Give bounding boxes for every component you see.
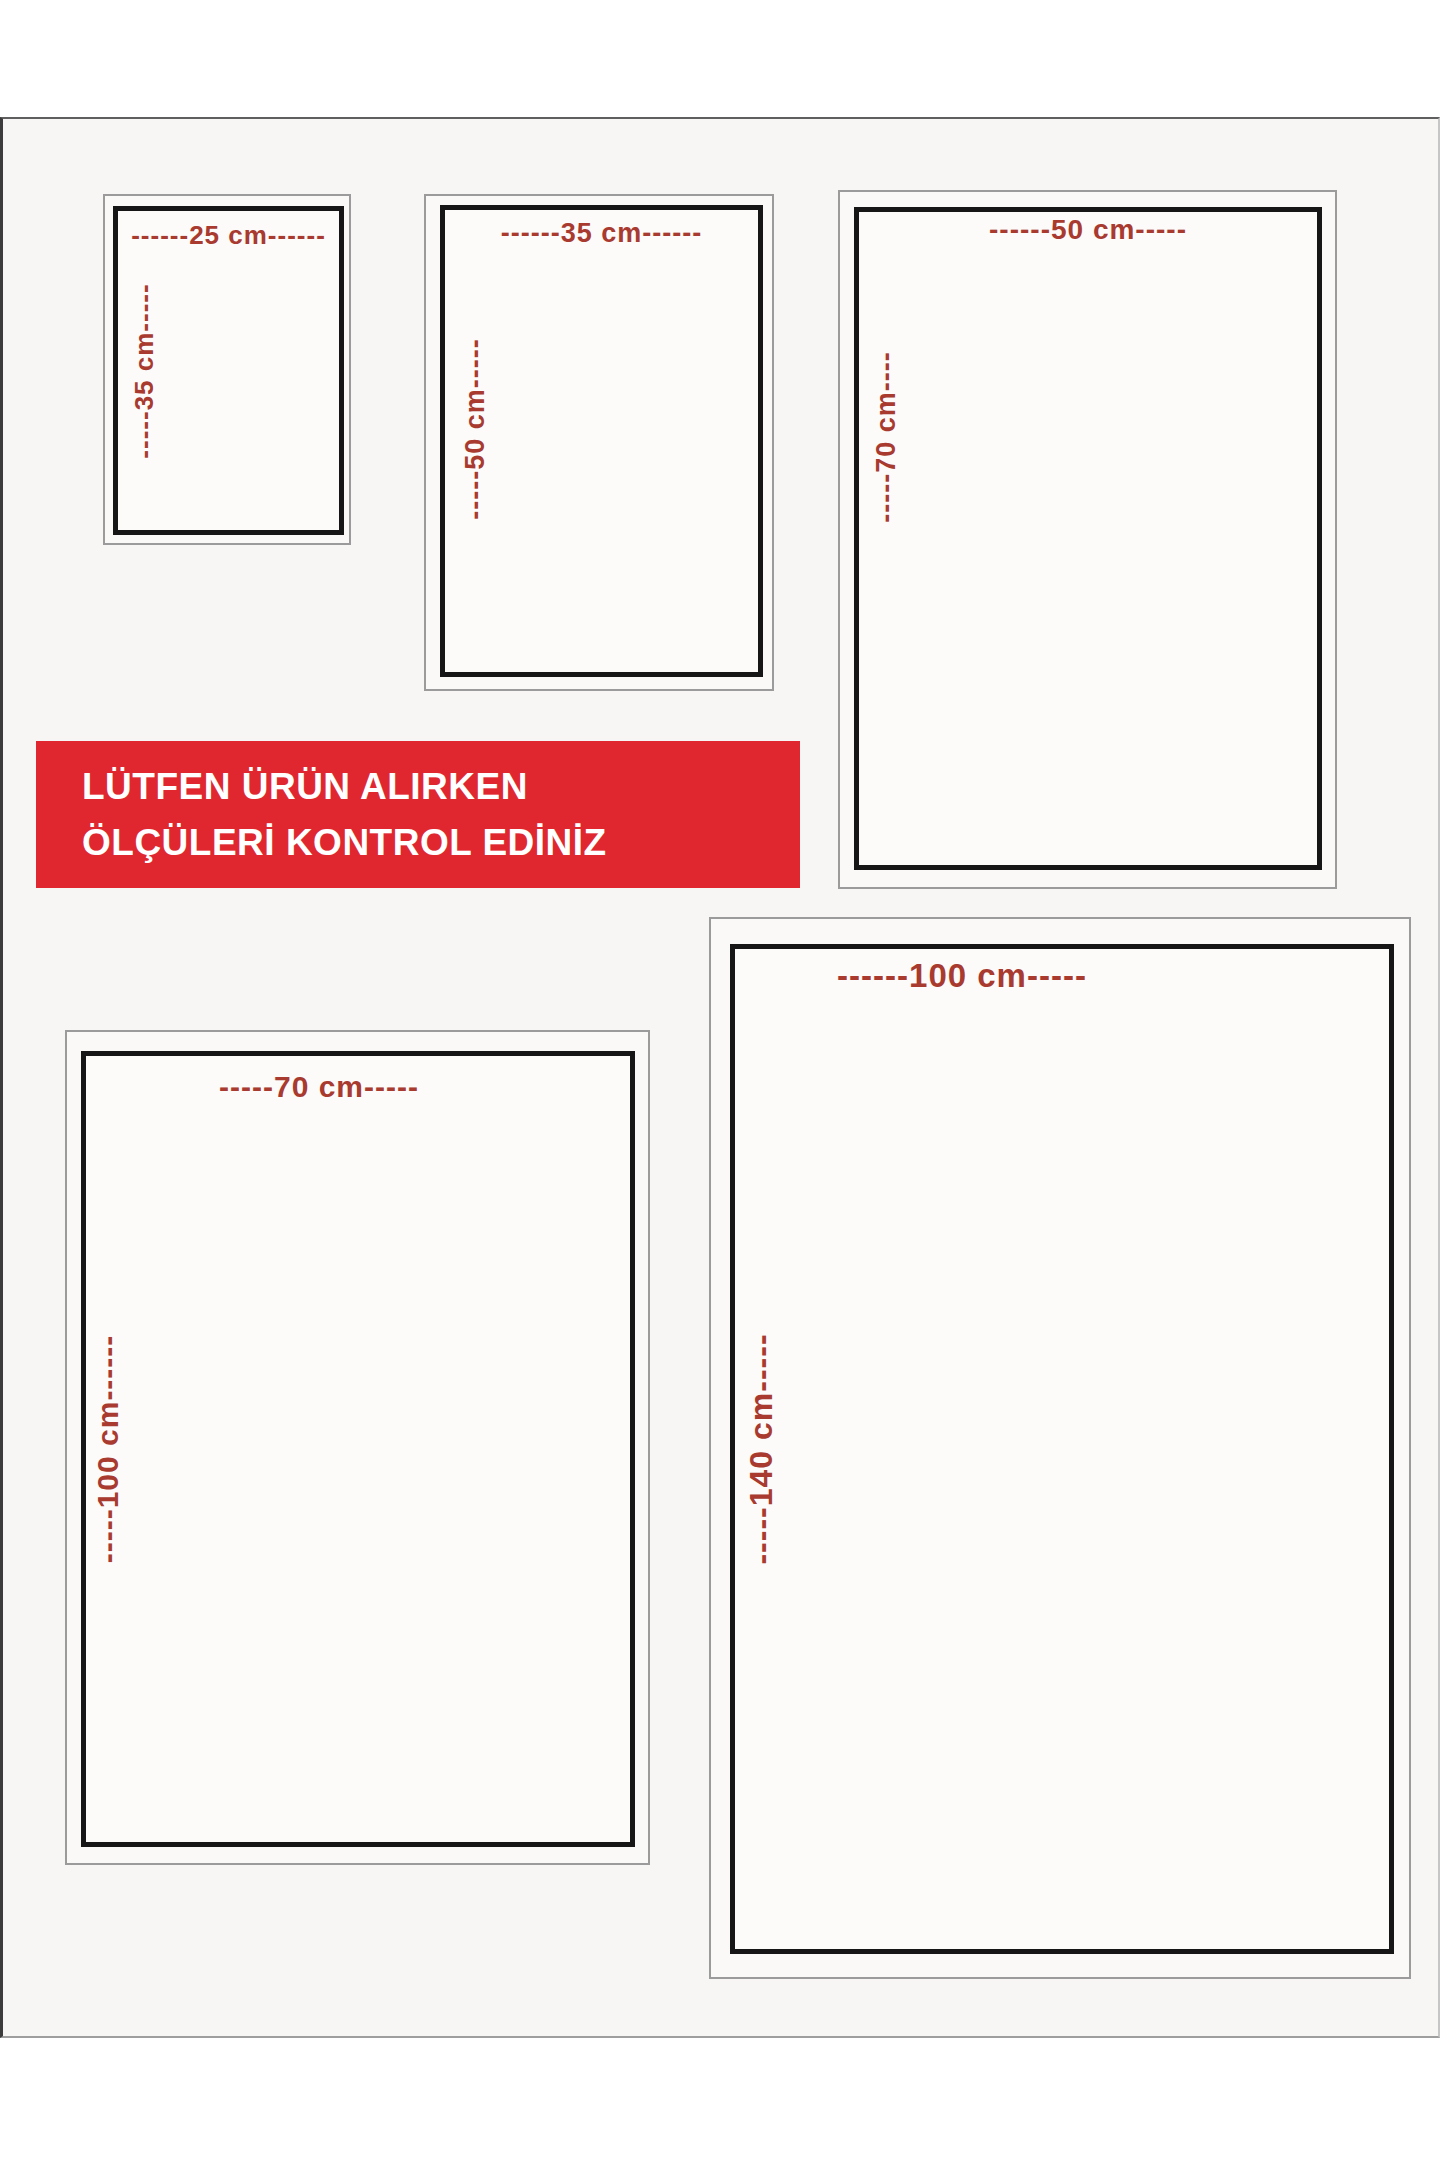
height-label: -----35 cm----- bbox=[129, 283, 160, 458]
width-label: ------100 cm----- bbox=[635, 957, 1289, 995]
width-label: ------50 cm----- bbox=[859, 214, 1317, 246]
height-label: -----70 cm---- bbox=[871, 351, 902, 522]
height-label: -----50 cm----- bbox=[460, 338, 491, 519]
size-box-70x100-frame: -----70 cm----- -----100 cm------ bbox=[81, 1051, 635, 1847]
size-box-35x50: ------35 cm------ -----50 cm----- bbox=[424, 194, 774, 691]
height-label: -----140 cm----- bbox=[743, 1333, 780, 1564]
width-label: -----70 cm----- bbox=[47, 1070, 591, 1104]
height-label: -----100 cm------ bbox=[91, 1335, 125, 1564]
notice-banner: LÜTFEN ÜRÜN ALIRKEN ÖLÇÜLERİ KONTROL EDİ… bbox=[36, 741, 800, 888]
notice-line-2: ÖLÇÜLERİ KONTROL EDİNİZ bbox=[82, 815, 800, 871]
size-box-70x100: -----70 cm----- -----100 cm------ bbox=[65, 1030, 650, 1865]
size-box-25x35-frame: ------25 cm------ -----35 cm----- bbox=[113, 206, 344, 535]
width-label: ------35 cm------ bbox=[445, 218, 758, 249]
size-box-25x35: ------25 cm------ -----35 cm----- bbox=[103, 194, 351, 545]
size-box-100x140: ------100 cm----- -----140 cm----- bbox=[709, 917, 1411, 1979]
notice-line-1: LÜTFEN ÜRÜN ALIRKEN bbox=[82, 759, 800, 815]
size-box-50x70-frame: ------50 cm----- -----70 cm---- bbox=[854, 207, 1322, 870]
size-guide-page: ------25 cm------ -----35 cm----- ------… bbox=[0, 117, 1440, 2038]
size-box-50x70: ------50 cm----- -----70 cm---- bbox=[838, 190, 1337, 889]
size-box-35x50-frame: ------35 cm------ -----50 cm----- bbox=[440, 205, 763, 677]
size-box-100x140-frame: ------100 cm----- -----140 cm----- bbox=[730, 944, 1394, 1954]
width-label: ------25 cm------ bbox=[118, 220, 339, 251]
